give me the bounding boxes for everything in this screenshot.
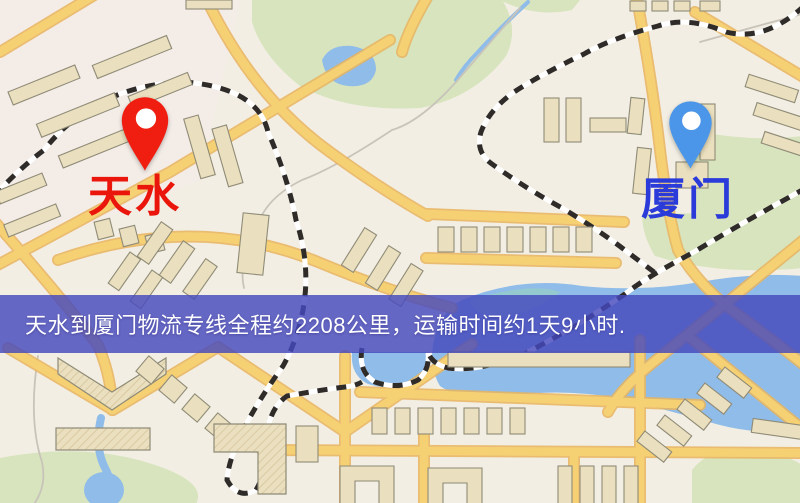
destination-label: 厦门: [641, 178, 735, 222]
destination-pin-icon: [664, 98, 717, 170]
route-info-text: 天水到厦门物流专线全程约2208公里，运输时间约1天9小时.: [0, 308, 626, 340]
origin-label: 天水: [88, 175, 182, 219]
map-canvas: [0, 0, 800, 503]
origin-pin-icon: [116, 94, 174, 172]
route-info-banner: 天水到厦门物流专线全程约2208公里，运输时间约1天9小时.: [0, 295, 800, 353]
map-image: 天水 厦门 天水到厦门物流专线全程约2208公里，运输时间约1天9小时.: [0, 0, 800, 503]
